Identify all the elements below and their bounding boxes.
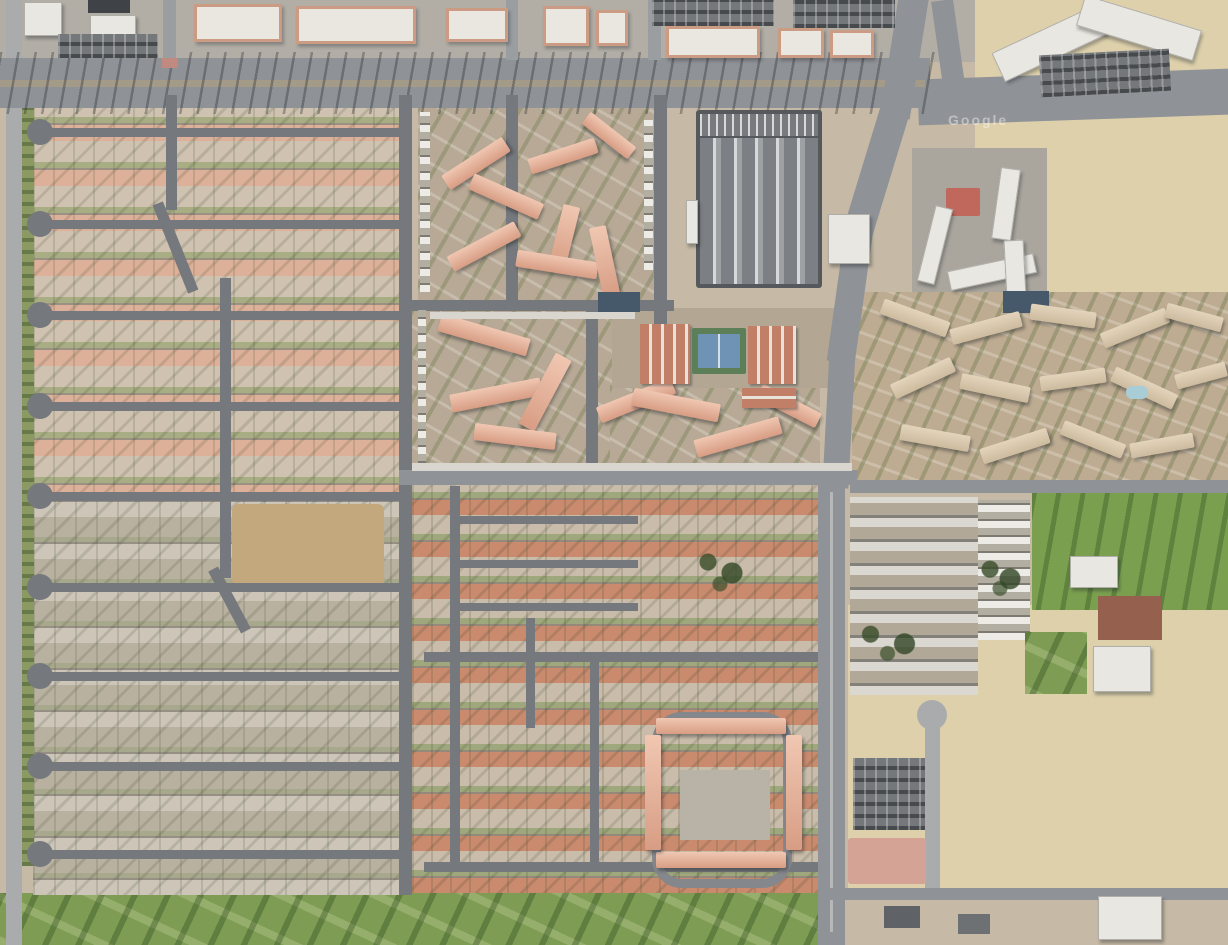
left-street-2 xyxy=(36,220,404,229)
lawn-patch-right xyxy=(1025,632,1087,694)
tree-clump-1 xyxy=(845,615,930,663)
mall-bldg-5 xyxy=(596,10,628,46)
culdesac-2 xyxy=(27,211,53,237)
garage-strip-c xyxy=(644,120,653,270)
mall-bldg-1 xyxy=(194,4,282,42)
tree-clump-3 xyxy=(690,540,750,595)
center-street-v3 xyxy=(590,656,599,868)
neighborhood-left-upper xyxy=(33,106,405,501)
google-watermark: Google xyxy=(948,112,1008,128)
center-street-v2 xyxy=(526,618,535,728)
garage-strip-d xyxy=(430,312,635,319)
collector-road-y478 xyxy=(399,470,857,485)
red-apartment-rows-3 xyxy=(742,388,796,408)
culdesac-5 xyxy=(27,483,53,509)
tree-clump-2 xyxy=(975,550,1025,598)
street-x590 xyxy=(586,305,598,483)
ring-complex-court xyxy=(680,770,770,840)
center-street-h4 xyxy=(424,652,836,662)
culdesac-8 xyxy=(27,753,53,779)
commercial-bldg-1 xyxy=(24,2,62,36)
ring-complex-bldg-w xyxy=(645,735,661,850)
mall-bldg-6 xyxy=(778,28,824,58)
culdesac-6 xyxy=(27,574,53,600)
arterial-median xyxy=(830,492,833,932)
mall-bldg-2 xyxy=(296,6,416,44)
stub-road xyxy=(925,712,940,892)
tennis-courts xyxy=(696,332,742,370)
palm-shadows-main-road xyxy=(0,52,935,114)
street-top-1 xyxy=(163,0,176,60)
red-apartment-rows-1 xyxy=(640,324,690,384)
culdesac-1 xyxy=(27,119,53,145)
dirt-lot xyxy=(232,504,384,586)
aerial-satellite-view: Google xyxy=(0,0,1228,945)
ring-complex-bldg-s xyxy=(656,852,786,868)
garage-strip-b xyxy=(418,310,426,470)
parking-bottom-right xyxy=(853,758,925,830)
left-street-1 xyxy=(36,128,404,137)
garage-strip-a xyxy=(420,112,430,292)
red-apartment-rows-2 xyxy=(748,326,796,384)
parking-top-right xyxy=(793,0,895,28)
left-street-7 xyxy=(36,672,404,681)
estate-house xyxy=(1070,556,1118,588)
small-building-dark-1 xyxy=(884,906,920,928)
sport-court-center xyxy=(598,292,640,312)
white-building-bottom xyxy=(1098,896,1162,940)
commercial-bldg-dark xyxy=(88,0,130,13)
ring-complex-bldg-n xyxy=(656,718,786,734)
mall-bldg-7 xyxy=(830,30,874,58)
road-left-vertical xyxy=(6,0,22,945)
storage-annex xyxy=(686,200,698,244)
center-street-v1 xyxy=(450,486,460,868)
mall-bldg-4 xyxy=(543,6,589,46)
crosswalk-pink xyxy=(162,58,178,68)
ring-complex-bldg-e xyxy=(786,735,802,850)
brick-courtyard xyxy=(1098,596,1162,640)
culdesac-7 xyxy=(27,663,53,689)
street-x655 xyxy=(654,95,667,325)
stub-culdesac xyxy=(917,700,947,730)
center-street-h1 xyxy=(450,516,638,524)
estates-green xyxy=(1032,492,1228,610)
left-street-9 xyxy=(36,850,404,859)
rv-storage-strip xyxy=(412,463,852,471)
connector-street-c xyxy=(220,278,231,578)
center-street-h3 xyxy=(452,603,638,611)
white-building-sand xyxy=(1093,646,1151,692)
center-street-h2 xyxy=(452,560,638,568)
mall-bldg-3 xyxy=(446,8,508,42)
small-building-dark-2 xyxy=(958,914,990,934)
left-street-8 xyxy=(36,762,404,771)
road-y487-east xyxy=(850,480,1228,493)
pink-roof-building xyxy=(848,838,926,884)
mall-strip xyxy=(666,26,760,58)
culdesac-4 xyxy=(27,393,53,419)
parking-center-top xyxy=(652,0,774,26)
golf-course xyxy=(0,893,838,945)
storage-facility-unit-rows xyxy=(700,138,818,284)
gray-apartments xyxy=(850,497,978,695)
office-bldg-east xyxy=(828,214,870,264)
pool xyxy=(1126,386,1148,399)
connector-street-a xyxy=(166,95,177,210)
culdesac-3 xyxy=(27,302,53,328)
culdesac-9 xyxy=(27,841,53,867)
parking-chevron xyxy=(1039,49,1171,98)
motel-bldg-d xyxy=(1003,240,1026,299)
storage-facility-top-row xyxy=(700,114,818,136)
road-bottom-east xyxy=(830,888,1228,900)
parking-topleft xyxy=(58,34,158,58)
